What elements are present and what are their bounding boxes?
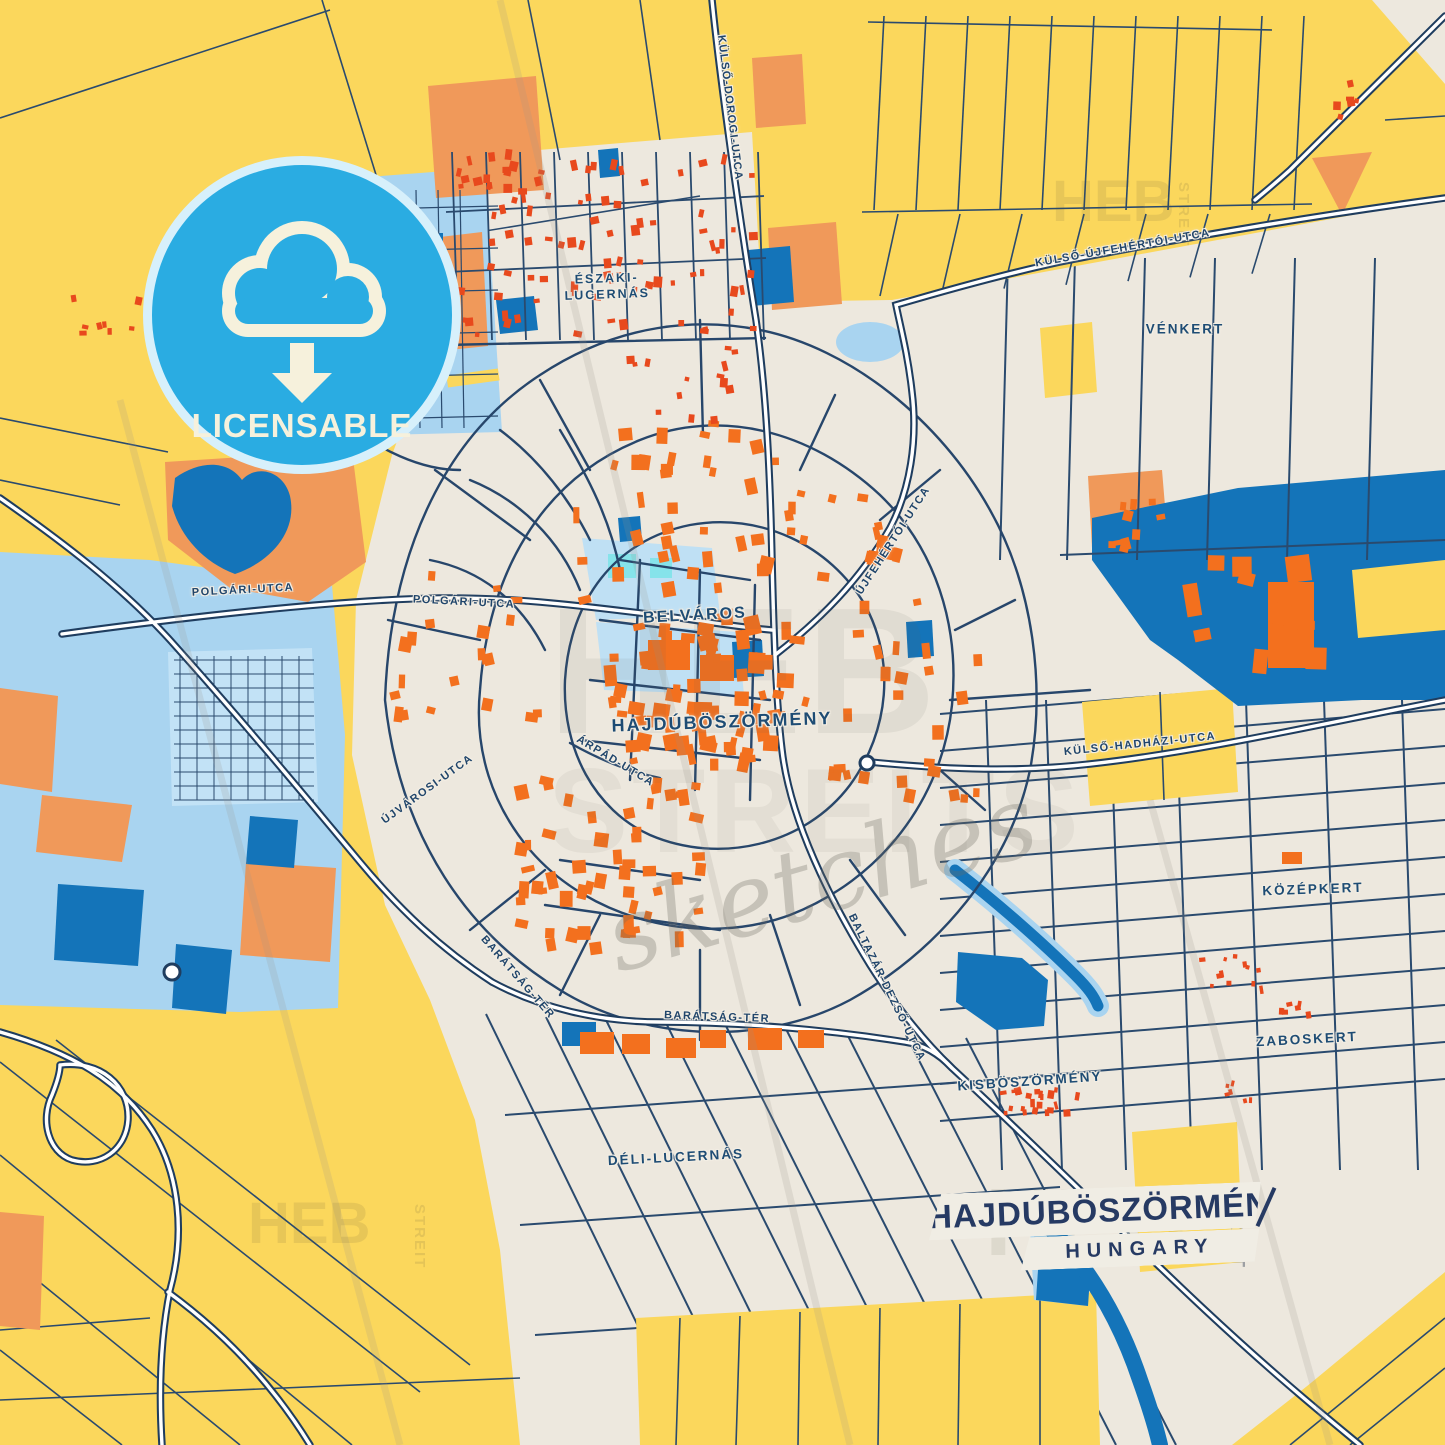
- district-label-kozepkert: KÖZÉPKERT: [1262, 880, 1364, 900]
- badge-label: LICENSABLE: [152, 407, 452, 445]
- district-label-venkert: VÉNKERT: [1146, 322, 1225, 339]
- field-notch: [1352, 560, 1445, 638]
- roundabout: [860, 756, 874, 770]
- roundabout: [164, 964, 180, 980]
- map-poster: HEB STREIT HEB STREIT HEB STREIT HEB STR…: [0, 0, 1445, 1445]
- district-label-eszaki-lucernas: ÉSZAKI- LUCERNÁS: [564, 270, 650, 304]
- licensable-badge[interactable]: LICENSABLE: [143, 156, 461, 474]
